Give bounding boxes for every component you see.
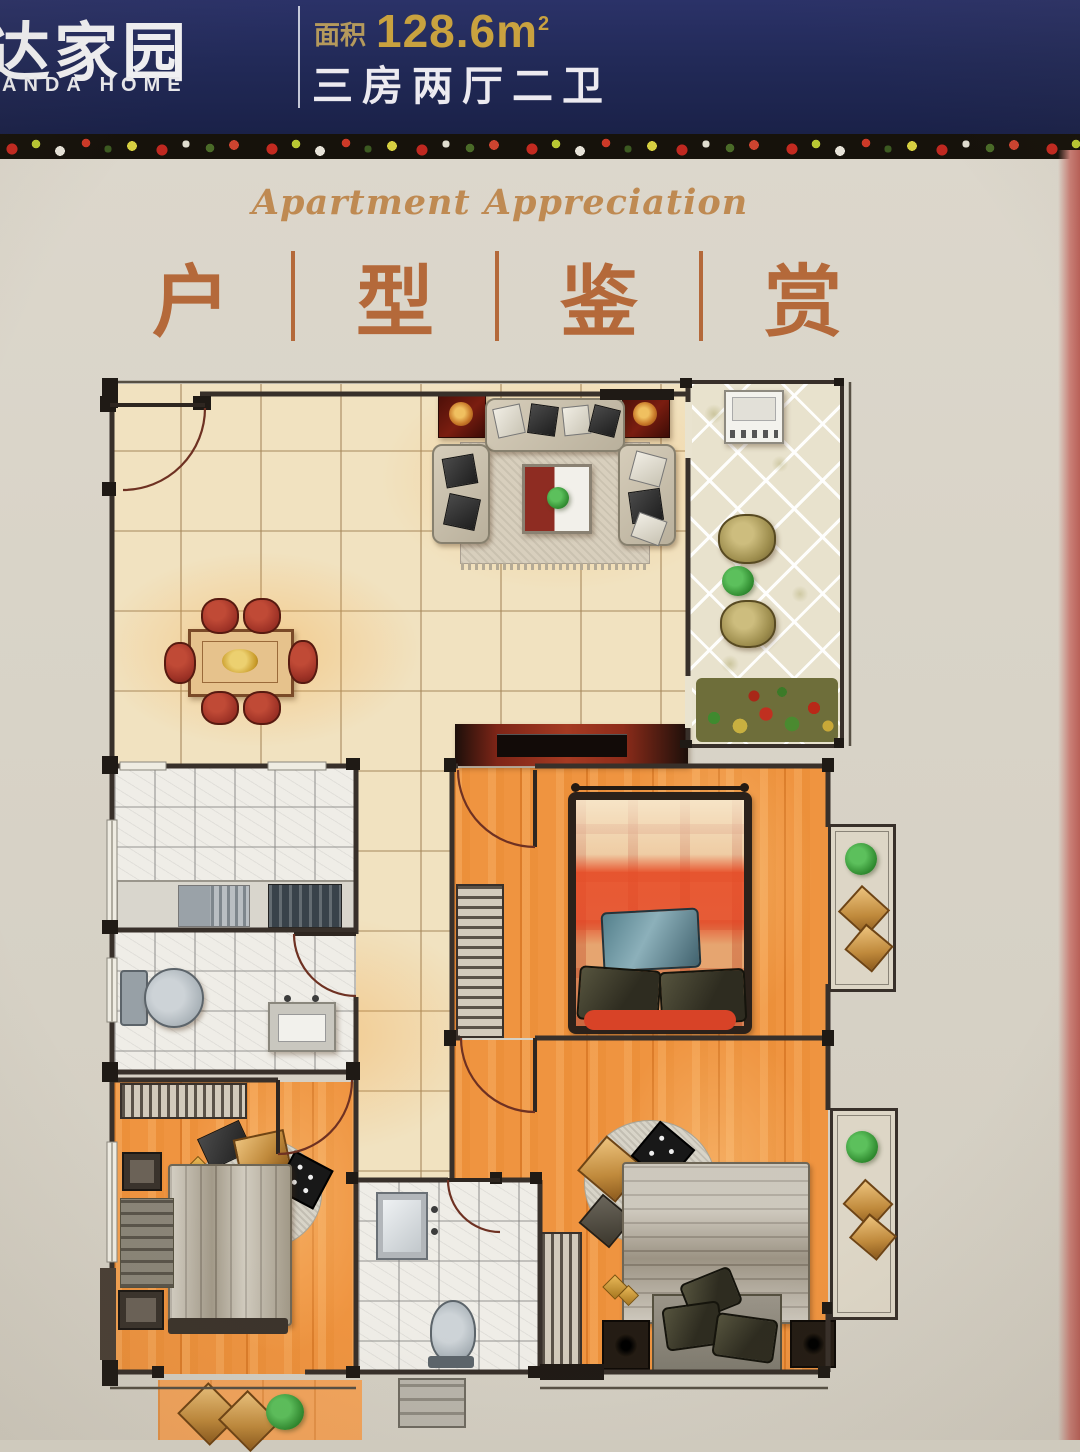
side-table-left — [438, 392, 486, 438]
sofa-left-seat — [432, 444, 490, 544]
bathroom-sink — [268, 1002, 336, 1052]
faucet-icon — [312, 995, 319, 1002]
plant-icon — [547, 487, 569, 509]
lamp-icon — [449, 402, 473, 426]
page-title: 户 型 鉴 赏 — [152, 248, 842, 344]
plant-icon — [845, 843, 877, 875]
sofa-pillow — [629, 450, 668, 487]
entry-steps — [398, 1378, 466, 1428]
serving-plate-icon — [222, 649, 258, 673]
title-separator — [699, 251, 703, 341]
master-wardrobe — [456, 884, 504, 1038]
caption-english: Apartment Appreciation — [240, 182, 760, 223]
header-divider — [298, 6, 300, 108]
title-char-4: 赏 — [764, 240, 842, 352]
vanity-cabinet — [376, 1192, 428, 1260]
toilet-icon — [144, 968, 204, 1028]
faucet-icon — [431, 1206, 438, 1213]
dining-chair — [201, 598, 239, 634]
rod-finial — [740, 783, 749, 792]
title-char-1: 户 — [152, 240, 230, 352]
sofa-right-seat — [618, 444, 676, 546]
dining-chair — [164, 642, 196, 684]
plant-icon — [722, 566, 754, 596]
side-table-right — [622, 392, 670, 438]
toilet-icon — [430, 1300, 476, 1362]
nightstand-top — [126, 1298, 156, 1322]
bedroom3-wardrobe — [540, 1232, 582, 1372]
dining-table — [188, 629, 294, 697]
frame-dot — [648, 1150, 655, 1157]
cushion-stack — [120, 1198, 174, 1288]
tv-wall — [455, 724, 688, 766]
frame-dot — [302, 1187, 309, 1194]
faucet-icon — [284, 995, 291, 1002]
frame-dot — [297, 1164, 304, 1171]
sofa-pillow — [443, 493, 481, 531]
faucet-icon — [431, 1228, 438, 1235]
page-edge-shadow — [1058, 150, 1080, 1440]
kitchen-sink — [178, 885, 250, 927]
sofa-pillow — [492, 403, 526, 438]
frame-dot — [658, 1135, 665, 1142]
frame-dot — [307, 1174, 314, 1181]
frame-dot — [668, 1148, 675, 1155]
bed-fold — [584, 1010, 736, 1030]
washer-controls — [730, 430, 778, 438]
title-char-2: 型 — [356, 240, 434, 352]
toilet-base — [428, 1356, 474, 1368]
kitchen-counter — [116, 880, 358, 932]
dining-chair — [243, 598, 281, 634]
washer-lid — [732, 397, 776, 421]
lamp-icon — [633, 402, 657, 426]
nightstand — [118, 1290, 164, 1330]
nightstand-top — [130, 1160, 154, 1183]
bed-pillow — [711, 1312, 779, 1364]
rug-fringe — [461, 563, 649, 570]
sofa-pillow — [527, 403, 559, 437]
area-value: 128.6m — [376, 4, 538, 58]
speaker-cabinet — [602, 1320, 650, 1370]
speaker-cabinet — [790, 1320, 836, 1368]
rod-finial — [571, 783, 580, 792]
coffee-table — [522, 464, 592, 534]
title-separator — [291, 251, 295, 341]
speaker-cone — [803, 1333, 824, 1355]
bedroom2-bed — [168, 1164, 292, 1326]
mirror-panel — [383, 1200, 421, 1252]
logo-english: ANDA HOME — [2, 74, 188, 97]
flower-photo-strip — [0, 134, 1080, 159]
master-bed — [568, 792, 752, 1034]
master-bay-window — [828, 824, 896, 992]
stove-icon — [268, 884, 342, 928]
header-band: 达家园 ANDA HOME 面积 128.6m 2 三房两厅二卫 — [0, 0, 1080, 134]
bed-footboard — [168, 1318, 288, 1334]
dining-chair — [288, 640, 318, 684]
sink-basin — [278, 1014, 326, 1042]
layout-description: 三房两厅二卫 — [312, 52, 612, 112]
title-separator — [495, 251, 499, 341]
nightstand — [122, 1152, 162, 1191]
dining-chair — [243, 691, 281, 725]
bed-pillow — [600, 907, 701, 972]
plant-icon — [846, 1131, 878, 1163]
curtain-rod — [576, 786, 744, 790]
title-char-3: 鉴 — [560, 240, 638, 352]
dining-chair — [201, 691, 239, 725]
bedroom3-bay-window — [830, 1108, 898, 1320]
area-line: 面积 128.6m 2 — [314, 4, 549, 58]
sofa-pillow — [588, 404, 621, 438]
speaker-cone — [615, 1334, 637, 1357]
area-superscript: 2 — [538, 13, 549, 36]
plant-icon — [266, 1394, 304, 1430]
sofa-pillow — [562, 405, 592, 437]
flyer-page: 达家园 ANDA HOME 面积 128.6m 2 三房两厅二卫 Apartme… — [0, 0, 1080, 1440]
wicker-chair — [718, 514, 776, 564]
sofa-pillow — [442, 453, 479, 488]
flower-bed — [696, 678, 838, 742]
bedroom2-wardrobe — [120, 1083, 247, 1119]
washing-machine — [724, 390, 784, 444]
wicker-chair — [720, 600, 776, 648]
floor-plan — [100, 372, 896, 1440]
sofa-three-seat — [485, 398, 625, 452]
tv-icon — [497, 734, 627, 757]
